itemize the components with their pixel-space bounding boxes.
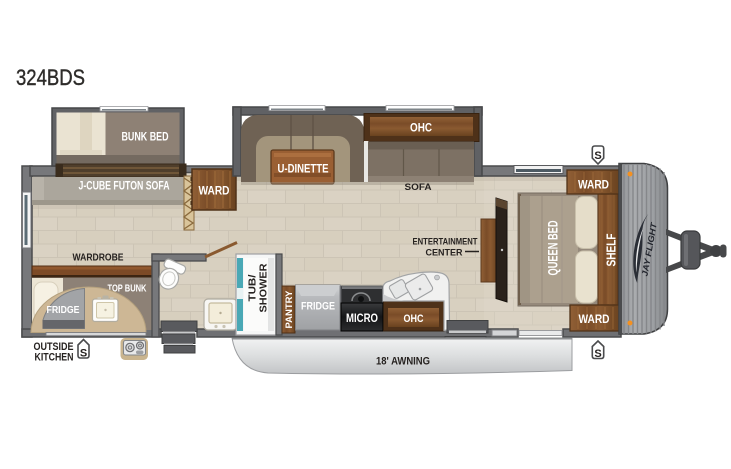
svg-text:U-DINETTE: U-DINETTE — [278, 162, 329, 176]
svg-text:WARDROBE: WARDROBE — [73, 253, 124, 264]
svg-text:BUNK BED: BUNK BED — [122, 130, 169, 144]
svg-text:FRIDGE: FRIDGE — [47, 304, 80, 316]
svg-text:WARD: WARD — [578, 178, 609, 192]
svg-text:CENTER: CENTER — [426, 248, 463, 259]
svg-text:KITCHEN: KITCHEN — [35, 352, 74, 364]
svg-text:S: S — [594, 348, 601, 360]
svg-text:FRIDGE: FRIDGE — [301, 301, 335, 313]
svg-text:QUEEN BED: QUEEN BED — [546, 220, 561, 275]
svg-text:18' AWNING: 18' AWNING — [376, 356, 430, 368]
svg-text:S: S — [80, 348, 87, 360]
svg-text:324BDS: 324BDS — [16, 65, 85, 90]
svg-text:ENTERTAINMENT: ENTERTAINMENT — [413, 237, 478, 248]
svg-text:J-CUBE FUTON SOFA: J-CUBE FUTON SOFA — [79, 179, 170, 193]
svg-text:S: S — [594, 150, 601, 162]
svg-text:WARD: WARD — [579, 312, 610, 326]
svg-text:SOFA: SOFA — [405, 182, 433, 192]
svg-text:OHC: OHC — [404, 313, 424, 325]
svg-text:SHELF: SHELF — [604, 233, 619, 266]
svg-text:OHC: OHC — [410, 121, 432, 135]
svg-text:SHOWER: SHOWER — [258, 263, 270, 312]
svg-text:WARD: WARD — [199, 184, 230, 198]
svg-text:PANTRY: PANTRY — [284, 290, 295, 329]
svg-text:MICRO: MICRO — [346, 313, 378, 325]
